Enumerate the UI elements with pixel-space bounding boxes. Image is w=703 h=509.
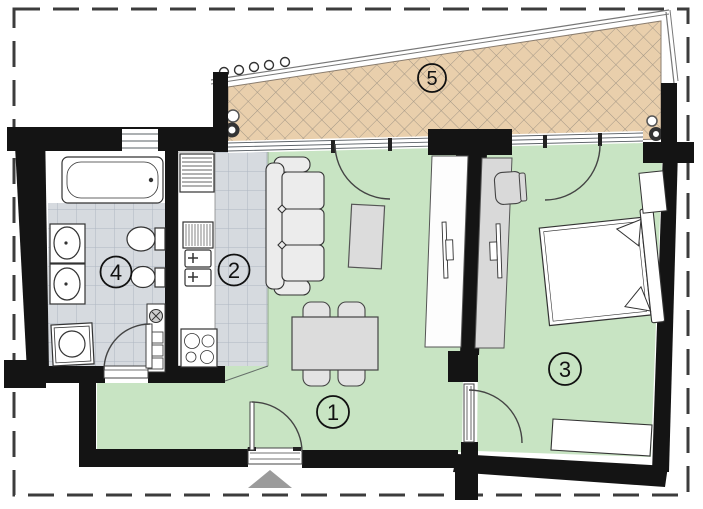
wall-segment xyxy=(4,360,46,388)
wall-segment xyxy=(448,351,478,382)
bidet-icon xyxy=(131,267,165,288)
railing-post-icon xyxy=(250,63,259,72)
railing-post-icon xyxy=(281,58,290,67)
chair-icon xyxy=(494,171,527,205)
nightstand-icon xyxy=(639,171,667,213)
floor-plan: 1 2 3 4 5 xyxy=(0,0,703,509)
dining-table-icon xyxy=(292,317,378,370)
room-number: 2 xyxy=(228,258,240,283)
room-number: 4 xyxy=(110,260,122,285)
floor-drain-icon xyxy=(647,116,657,126)
floor-drain-icon xyxy=(651,129,661,139)
wall-segment xyxy=(302,450,458,468)
window-mullion xyxy=(388,138,392,151)
kitchen-fixtures xyxy=(180,154,217,367)
window-mullion xyxy=(543,135,547,148)
kitchen-sink-icon xyxy=(183,222,213,286)
wall-segment xyxy=(455,470,478,500)
wall-segment xyxy=(428,129,512,155)
window-mullion xyxy=(598,133,602,146)
fridge-icon xyxy=(180,154,214,192)
wall-segment xyxy=(79,383,96,455)
washbasin-icon xyxy=(50,264,85,304)
toilet-icon xyxy=(127,227,165,251)
bed-icon xyxy=(538,208,664,333)
sofa-icon xyxy=(266,157,324,295)
bathroom-window xyxy=(122,129,158,153)
railing-post-icon xyxy=(265,61,274,70)
bathtub-icon xyxy=(62,157,163,203)
room-number: 3 xyxy=(559,357,571,382)
washbasin-icon xyxy=(50,224,85,263)
dresser-icon xyxy=(551,419,652,456)
door-leaf xyxy=(250,402,254,450)
tv-sideboard xyxy=(425,156,468,347)
railing-post-icon xyxy=(235,66,244,75)
washing-machine-icon xyxy=(51,323,94,366)
wall-segment xyxy=(213,72,228,152)
room-number: 1 xyxy=(327,400,339,425)
wall-segment xyxy=(40,366,105,383)
wall-segment xyxy=(661,83,677,150)
floor-drain-icon xyxy=(227,125,238,136)
stove-icon xyxy=(181,329,217,367)
coffee-table-icon xyxy=(348,204,384,269)
wall-segment xyxy=(461,442,478,462)
room-number: 5 xyxy=(426,68,437,90)
floor-plan-svg: 1 2 3 4 5 xyxy=(0,0,703,509)
floor-drain-icon xyxy=(227,110,239,122)
wall-segment xyxy=(79,449,248,467)
wall-segment xyxy=(165,147,178,372)
door-leaf xyxy=(146,324,152,368)
